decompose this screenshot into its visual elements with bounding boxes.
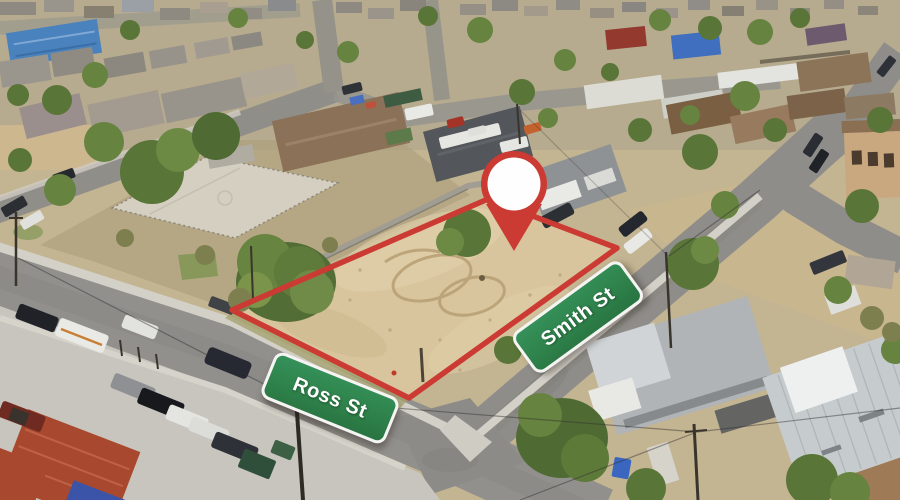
pin-inner-circle	[488, 158, 541, 211]
aerial-listing-photo: Ross St Smith St	[0, 0, 900, 500]
aerial-scene	[0, 0, 900, 500]
